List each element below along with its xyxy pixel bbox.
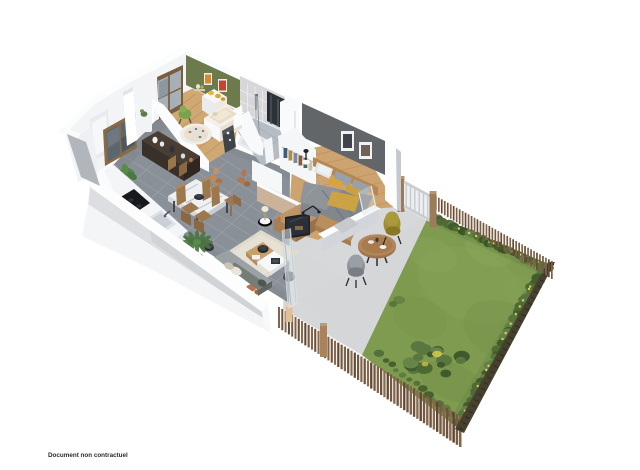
svg-text:Document non contractuel: Document non contractuel [48, 452, 128, 459]
